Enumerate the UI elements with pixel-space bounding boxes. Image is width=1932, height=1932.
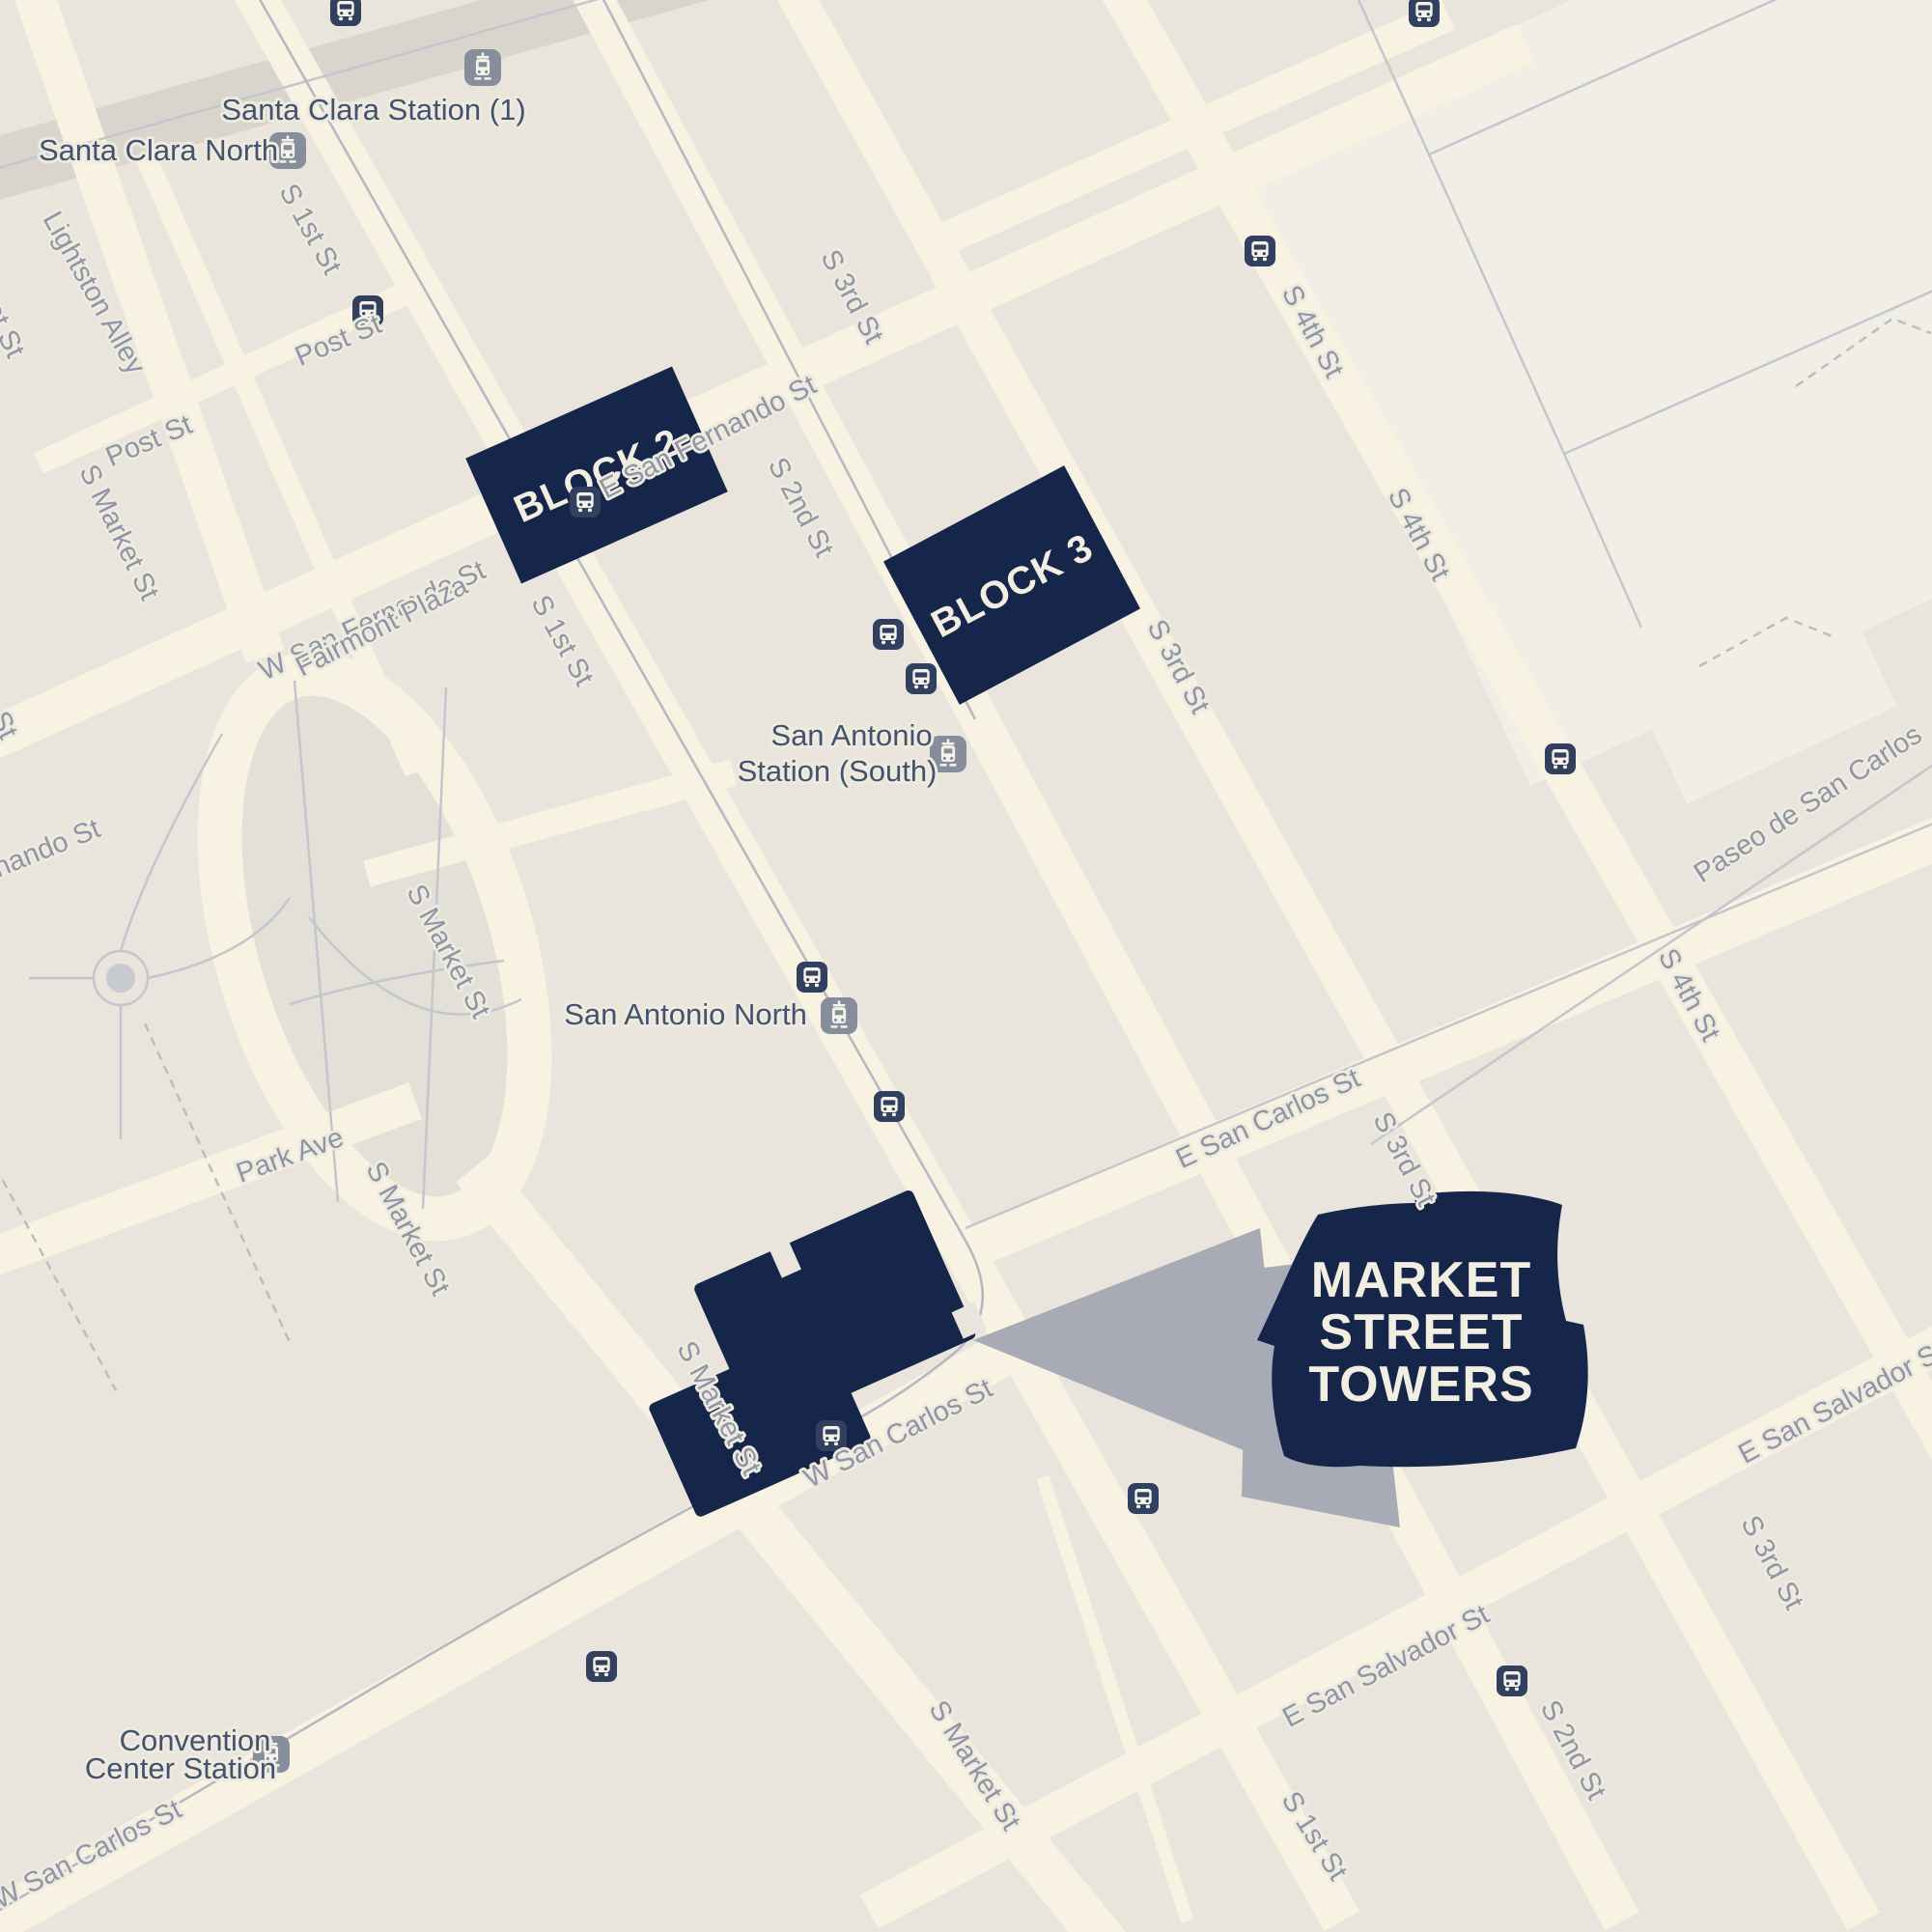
bus-stop-icon (1497, 1666, 1527, 1696)
bus-stop-icon (874, 1091, 905, 1122)
light-rail-station-icon (464, 49, 501, 86)
station-label: Santa Clara Station (1) (221, 93, 525, 126)
station-label: Station (South) (738, 754, 938, 788)
light-rail-station-icon (821, 997, 857, 1034)
badge-title-line1: MARKET (1311, 1252, 1531, 1308)
station-label: Center Station (85, 1751, 276, 1785)
map-canvas[interactable]: MARKET STREET TOWERS BLOCK 2 BLOCK 3 San… (0, 0, 1932, 1932)
bus-stop-icon (1545, 743, 1576, 774)
station-label: Santa Clara North (39, 133, 278, 167)
bus-stop-icon (570, 487, 601, 518)
badge-title-line2: STREET (1319, 1304, 1523, 1360)
badge-title-line3: TOWERS (1308, 1357, 1533, 1413)
bus-stop-icon (906, 663, 937, 694)
station-label: San Antonio North (564, 997, 807, 1031)
bus-stop-icon (330, 0, 361, 26)
station-label: San Antonio (770, 718, 932, 752)
bus-stop-icon (1245, 236, 1275, 266)
bus-stop-icon (1409, 0, 1440, 27)
bus-stop-icon (873, 619, 904, 650)
bus-stop-icon (586, 1651, 617, 1682)
bus-stop-icon (1128, 1483, 1159, 1514)
bus-stop-icon (797, 962, 827, 993)
